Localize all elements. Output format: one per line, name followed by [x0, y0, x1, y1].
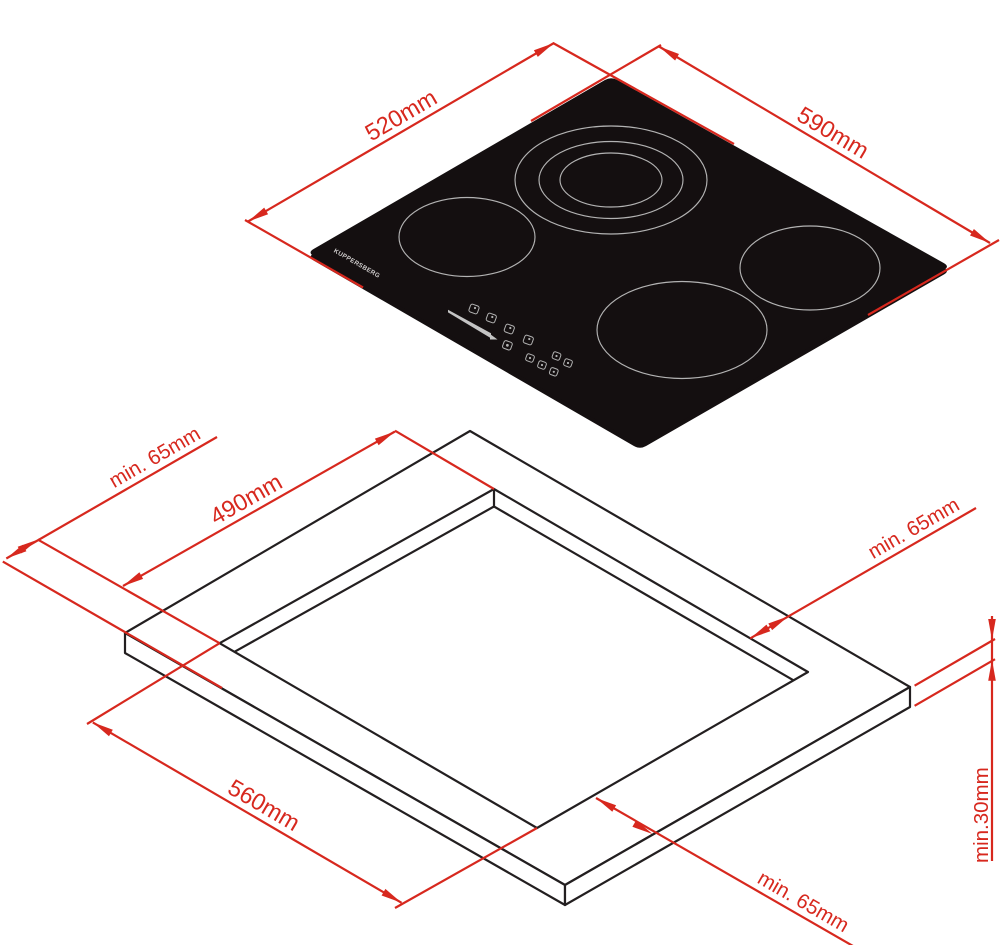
svg-text:min.30mm: min.30mm	[970, 767, 993, 863]
